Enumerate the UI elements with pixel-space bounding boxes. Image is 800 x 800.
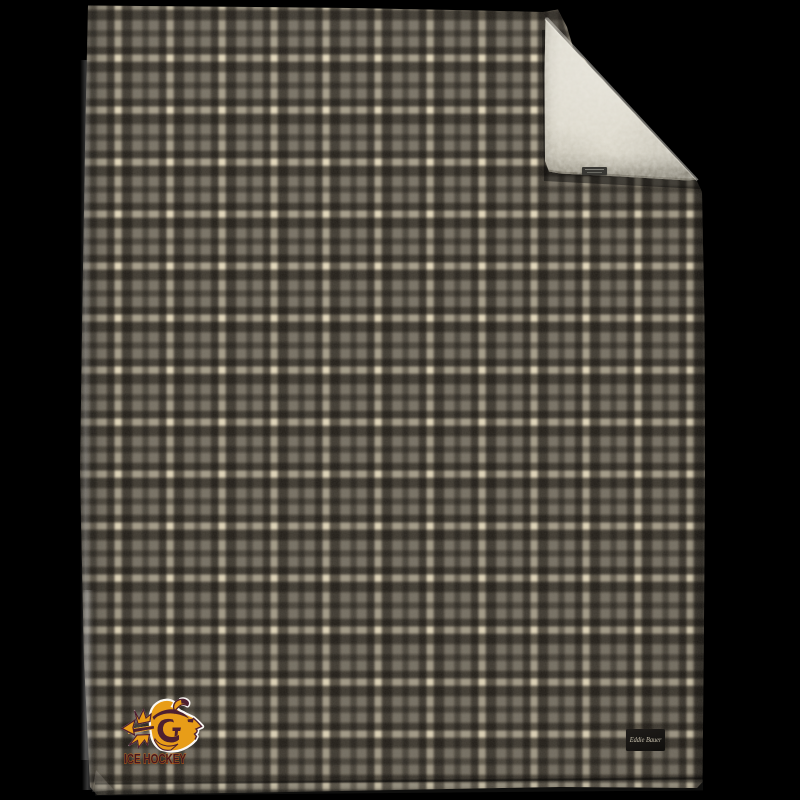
svg-text:ICE HOCKEY: ICE HOCKEY	[124, 751, 186, 767]
